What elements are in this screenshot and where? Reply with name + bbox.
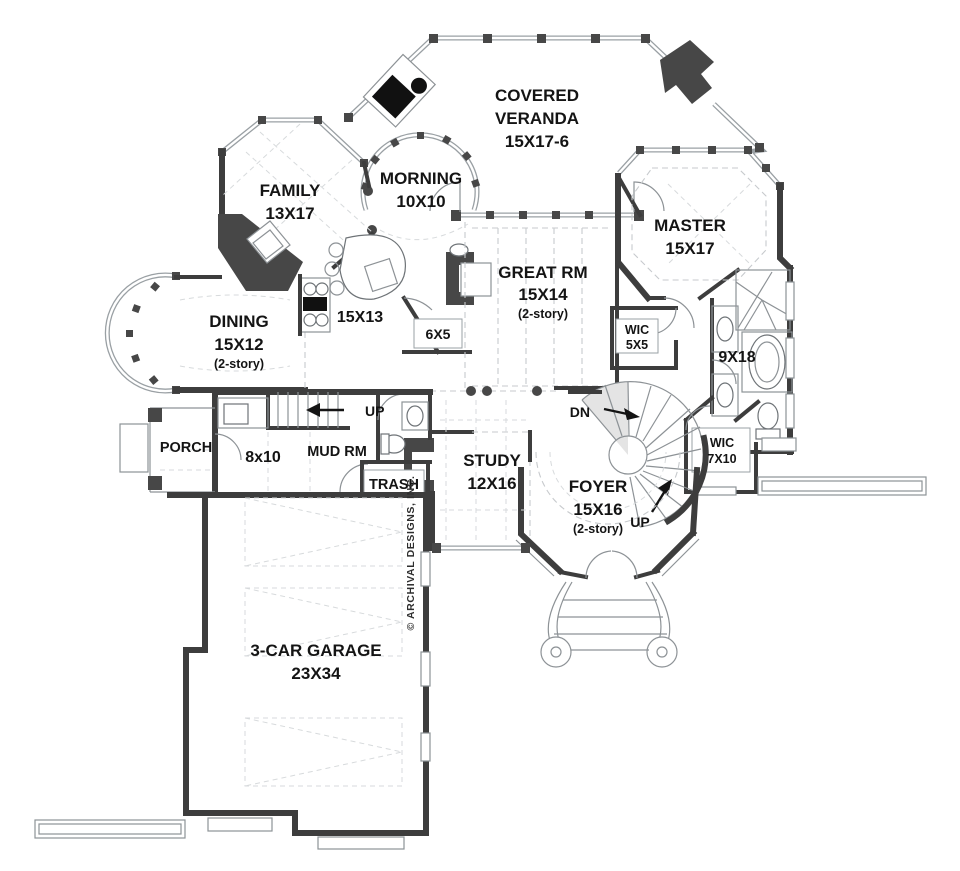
svg-text:WIC: WIC — [625, 323, 649, 337]
powder-toilet-icon — [381, 434, 405, 454]
room-label-master: MASTER 15X17 — [654, 216, 726, 258]
svg-text:PORCH: PORCH — [160, 440, 212, 456]
pantry — [404, 298, 470, 352]
fireplace-icon — [660, 40, 714, 104]
room-label-pantry: 6X5 — [426, 326, 451, 342]
kitchen-island — [325, 235, 405, 299]
svg-text:WIC: WIC — [710, 436, 734, 450]
svg-text:9X18: 9X18 — [718, 349, 755, 366]
room-label-dining: DINING 15X12 (2-story) — [209, 312, 269, 371]
svg-text:15X14: 15X14 — [518, 285, 568, 304]
floor-plan-svg: COVERED VERANDA 15X17-6 FAMILY 13X17 MOR… — [0, 0, 960, 871]
svg-text:6X5: 6X5 — [426, 326, 451, 342]
powder-sink-icon — [402, 402, 428, 430]
svg-text:13X17: 13X17 — [265, 204, 314, 223]
svg-text:15X12: 15X12 — [214, 335, 263, 354]
svg-text:(2-story): (2-story) — [573, 522, 623, 536]
svg-text:VERANDA: VERANDA — [495, 109, 579, 128]
svg-text:DINING: DINING — [209, 312, 269, 331]
room-label-study: STUDY 12X16 — [463, 451, 521, 493]
room-label-foyer: FOYER 15X16 (2-story) — [569, 477, 628, 536]
svg-text:MORNING: MORNING — [380, 169, 462, 188]
svg-text:15X17-6: 15X17-6 — [505, 132, 569, 151]
room-label-bath: 9X18 — [718, 349, 755, 366]
svg-text:UP: UP — [630, 514, 649, 530]
svg-text:15X17: 15X17 — [665, 239, 714, 258]
svg-text:3-CAR GARAGE: 3-CAR GARAGE — [250, 641, 381, 660]
room-label-kitchen: 15X13 — [337, 309, 383, 326]
room-label-garage: 3-CAR GARAGE 23X34 — [250, 641, 381, 683]
terrace-strip-right — [758, 438, 926, 495]
room-label-great: GREAT RM 15X14 (2-story) — [498, 263, 587, 321]
svg-text:FOYER: FOYER — [569, 477, 628, 496]
terrace-strip-left — [35, 820, 185, 838]
svg-text:MUD RM: MUD RM — [307, 444, 367, 460]
svg-text:10X10: 10X10 — [396, 192, 445, 211]
room-label-morning: MORNING 10X10 — [380, 169, 462, 211]
shower-icon — [736, 270, 790, 330]
svg-text:23X34: 23X34 — [291, 664, 341, 683]
svg-text:5X5: 5X5 — [626, 338, 648, 352]
room-label-wic-master: WIC 5X5 — [625, 323, 649, 352]
svg-text:FAMILY: FAMILY — [260, 181, 321, 200]
svg-text:12X16: 12X16 — [467, 474, 516, 493]
svg-text:15X16: 15X16 — [573, 500, 622, 519]
grill-icon — [363, 55, 435, 127]
room-label-family: FAMILY 13X17 — [260, 181, 321, 223]
room-label-mud: MUD RM — [307, 444, 367, 460]
svg-text:© ARCHIVAL DESIGNS, INC.: © ARCHIVAL DESIGNS, INC. — [405, 476, 417, 631]
copyright-text: © ARCHIVAL DESIGNS, INC. — [405, 476, 417, 631]
svg-text:7X10: 7X10 — [707, 452, 736, 466]
svg-text:GREAT RM: GREAT RM — [498, 263, 587, 282]
toilet-icon — [756, 403, 780, 439]
svg-text:15X13: 15X13 — [337, 309, 383, 326]
svg-text:UP: UP — [365, 403, 384, 419]
room-label-porch: PORCH — [160, 440, 212, 456]
svg-text:COVERED: COVERED — [495, 86, 579, 105]
family-fireplace-icon — [218, 214, 303, 291]
svg-text:(2-story): (2-story) — [518, 307, 568, 321]
floor-plan-page: COVERED VERANDA 15X17-6 FAMILY 13X17 MOR… — [0, 0, 960, 871]
svg-text:8x10: 8x10 — [245, 449, 281, 466]
bar-cabinet-icon — [446, 244, 491, 305]
svg-text:MASTER: MASTER — [654, 216, 726, 235]
svg-text:(2-story): (2-story) — [214, 357, 264, 371]
room-label-laundry: 8x10 — [245, 449, 281, 466]
svg-text:DN: DN — [570, 404, 590, 420]
entry-steps — [541, 582, 677, 667]
bath-windows — [786, 282, 794, 428]
svg-text:STUDY: STUDY — [463, 451, 521, 470]
stove-icon — [300, 278, 330, 332]
front-double-door — [586, 551, 637, 578]
laundry-counter — [218, 398, 268, 428]
room-label-veranda: COVERED VERANDA 15X17-6 — [495, 86, 579, 151]
